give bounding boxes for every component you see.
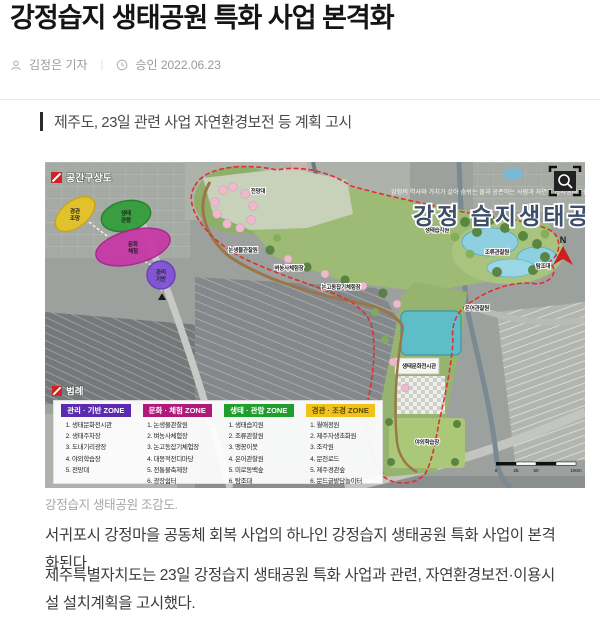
legend-box: 관리 · 기반 ZONE 생태문화전시관 생태주차장 도내기리광장 야외학습장 … — [53, 400, 383, 484]
legend-item: 생태문화전시관 — [72, 420, 131, 431]
legend-item: 도내기리광장 — [72, 442, 131, 453]
bubble-label-3a: 문화 — [128, 240, 138, 248]
legend-item: 논생물관찰원 — [154, 420, 213, 431]
svg-text:생태문화전시관: 생태문화전시관 — [402, 362, 436, 370]
bubble-label-4b: 기반 — [156, 275, 166, 283]
svg-text:25: 25 — [513, 468, 519, 473]
legend-zone-3: 생태 · 관람 ZONE 생태습지원 조류관찰원 맹꽁이못 은어관찰원 미로동백… — [224, 404, 294, 487]
legend-item: 맹꽁이못 — [235, 442, 294, 453]
svg-text:50: 50 — [533, 468, 539, 473]
subheading-text: 제주도, 23일 관련 사업 자연환경보전 등 계획 고시 — [54, 111, 352, 132]
legend-item: 전통물축제장 — [154, 465, 213, 476]
bubble-label-1a: 경관 — [70, 207, 80, 215]
legend-zone-4: 경관 · 조경 ZONE 월애정원 제주자생초화원 조각원 문천로드 제주경관숲… — [306, 404, 376, 487]
svg-text:야외학습장: 야외학습장 — [415, 438, 439, 446]
legend-item: 전망대 — [72, 465, 131, 476]
svg-text:조류관찰원: 조류관찰원 — [485, 248, 509, 256]
legend-zone-2-header: 문화 · 체험 ZONE — [143, 404, 213, 417]
legend-item: 광장쉼터 — [154, 476, 213, 487]
divider-rule — [0, 99, 600, 100]
svg-text:논생물관찰원: 논생물관찰원 — [228, 246, 257, 254]
clock-icon — [116, 59, 128, 71]
bubble-label-1b: 조망 — [70, 214, 80, 222]
legend-zone-4-header: 경관 · 조경 ZONE — [306, 404, 376, 417]
byline: 김정은 기자 | 승인 2022.06.23 — [10, 56, 221, 73]
svg-text:은어관찰원: 은어관찰원 — [465, 304, 489, 312]
svg-text:전망대: 전망대 — [251, 187, 266, 195]
svg-text:공간구상도: 공간구상도 — [66, 172, 112, 185]
svg-text:논고동잡기체험장: 논고동잡기체험장 — [322, 283, 361, 291]
concept-label: 공간구상도 — [51, 172, 112, 185]
article-page: 강정습지 생태공원 특화 사업 본격화 김정은 기자 | 승인 2022.06.… — [0, 0, 600, 620]
legend-item: 조각원 — [317, 442, 376, 453]
legend-zone-3-header: 생태 · 관람 ZONE — [224, 404, 294, 417]
legend-item: 논고동잡기체험장 — [154, 442, 213, 453]
magnifier-icon — [550, 167, 580, 195]
legend-item: 생태습지원 — [235, 420, 294, 431]
legend-item: 제주경관숲 — [317, 465, 376, 476]
article-image[interactable]: 경관 조망 생태 관람 문화 체험 관리 기반 전망대 논생물관찰원 벼농사체험… — [45, 162, 585, 488]
bubble-label-4a: 관리 — [156, 268, 166, 276]
image-caption: 강정습지 생태공원 조감도. — [45, 494, 178, 513]
svg-text:탐조대: 탐조대 — [536, 262, 551, 270]
legend-item: 조류관찰원 — [235, 431, 294, 442]
legend-zone-2: 문화 · 체험 ZONE 논생물관찰원 벼농사체험장 논고동잡기체험장 대몽적전… — [143, 404, 213, 487]
legend-zone-1: 관리 · 기반 ZONE 생태문화전시관 생태주차장 도내기리광장 야외학습장 … — [61, 404, 131, 487]
svg-text:100m: 100m — [570, 468, 582, 473]
bubble-label-2a: 생태 — [121, 209, 131, 217]
legend-item: 야외학습장 — [72, 454, 131, 465]
svg-text:범례: 범례 — [66, 386, 83, 398]
legend-item: 월애정원 — [317, 420, 376, 431]
legend-item: 생태주차장 — [72, 431, 131, 442]
legend-label: 범례 — [52, 386, 83, 398]
legend-item: 탐조대 — [235, 476, 294, 487]
byline-separator: | — [101, 59, 104, 71]
page-title: 강정습지 생태공원 특화 사업 본격화 — [10, 2, 594, 36]
legend-item: 미로동백숲 — [235, 465, 294, 476]
map-title: 강정 습지생태공원 — [413, 203, 585, 229]
bubble-label-3b: 체험 — [128, 247, 138, 255]
legend-item: 은어관찰원 — [235, 454, 294, 465]
reporter-name: 김정은 기자 — [29, 56, 88, 73]
legend-item: 문천로드 — [317, 454, 376, 465]
paragraph-2: 제주특별자치도는 23일 강정습지 생태공원 특화 사업과 관련, 자연환경보전… — [45, 562, 565, 618]
legend-item: 벼농사체험장 — [154, 431, 213, 442]
svg-text:N: N — [560, 235, 567, 245]
legend-item: 문드글밭담놀이터 — [317, 476, 376, 487]
svg-text:벼농사체험장: 벼농사체험장 — [274, 264, 303, 272]
article-subheading: 제주도, 23일 관련 사업 자연환경보전 등 계획 고시 — [40, 111, 352, 132]
bubble-label-2b: 관람 — [121, 216, 131, 224]
approved-date: 승인 2022.06.23 — [135, 56, 220, 73]
reporter-icon — [10, 59, 22, 71]
legend-zone-1-header: 관리 · 기반 ZONE — [61, 404, 131, 417]
subheading-bar — [40, 112, 43, 131]
legend-item: 대몽적전디마당 — [154, 454, 213, 465]
legend-item: 제주자생초화원 — [317, 431, 376, 442]
